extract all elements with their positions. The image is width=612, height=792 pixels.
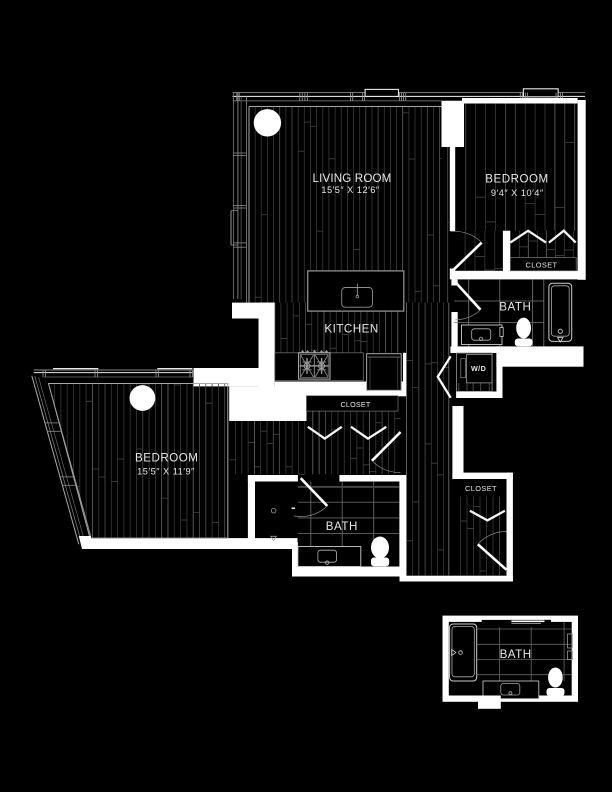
svg-text:15′5″ X 12′6″: 15′5″ X 12′6″ (321, 185, 380, 195)
svg-text:BATH: BATH (500, 648, 532, 661)
svg-text:BEDROOM: BEDROOM (485, 173, 548, 186)
svg-text:CLOSET: CLOSET (341, 400, 371, 409)
svg-text:BATH: BATH (499, 301, 531, 314)
svg-text:LIVING ROOM: LIVING ROOM (313, 172, 392, 185)
svg-text:BATH: BATH (326, 520, 358, 533)
svg-text:BEDROOM: BEDROOM (135, 452, 198, 465)
svg-text:9′4″ X 10′4″: 9′4″ X 10′4″ (491, 188, 544, 198)
svg-text:CLOSET: CLOSET (465, 484, 497, 493)
svg-text:15′5″ X 11′9″: 15′5″ X 11′9″ (137, 466, 195, 476)
svg-text:KITCHEN: KITCHEN (324, 323, 378, 336)
svg-text:W/D: W/D (471, 364, 486, 373)
svg-text:CLOSET: CLOSET (526, 261, 558, 270)
